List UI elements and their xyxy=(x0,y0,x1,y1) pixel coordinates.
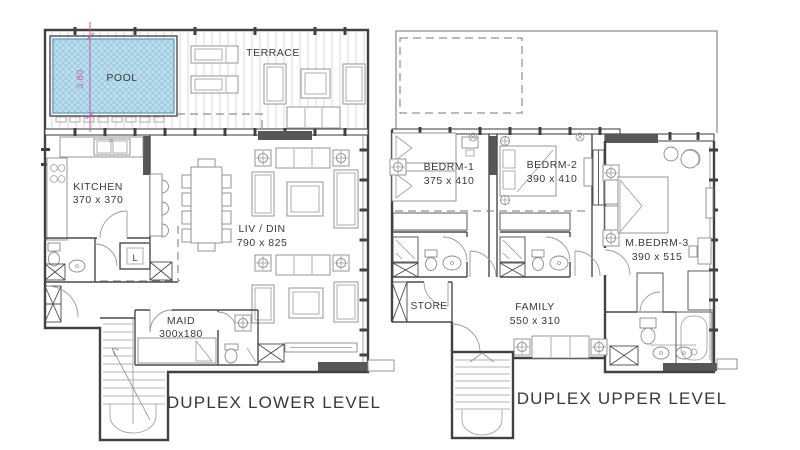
bedroom1-label: BEDRM-1 xyxy=(424,161,475,173)
pool-area: 3.80 POOL xyxy=(50,22,177,132)
upper-level-title: DUPLEX UPPER LEVEL xyxy=(517,389,728,408)
living-furniture xyxy=(252,148,358,362)
master-bedroom-dim-label: 390 x 515 xyxy=(632,251,683,263)
floorplan-page: 3.80 POOL TERRACE xyxy=(0,0,800,450)
bathroom-2 xyxy=(500,232,570,277)
bedroom1-dim-label: 375 x 410 xyxy=(424,175,475,187)
store-room: STORE xyxy=(392,282,452,322)
maid-room: MAID 300x180 xyxy=(135,310,258,365)
laundry-label: L xyxy=(132,253,137,263)
bedroom-2: BEDRM-2 390 x 410 xyxy=(500,133,592,205)
master-bedroom-label: M.BEDRM-3 xyxy=(625,237,688,249)
kitchen-label: KITCHEN xyxy=(73,181,123,193)
store-label: STORE xyxy=(411,301,448,312)
lower-footprint-outline xyxy=(396,31,717,133)
pool-label: POOL xyxy=(106,72,137,84)
kitchen: KITCHEN 370 x 370 xyxy=(45,135,169,242)
lower-level-plan: 3.80 POOL TERRACE xyxy=(41,22,394,440)
bedroom-1: BEDRM-1 375 x 410 xyxy=(390,133,478,201)
family-label: FAMILY xyxy=(515,301,555,313)
upper-level-plan: BEDRM-1 375 x 410 BEDRM-2 390 x 410 xyxy=(390,31,737,438)
floorplan-drawing: 3.80 POOL TERRACE xyxy=(0,0,800,450)
family-dim-label: 550 x 310 xyxy=(510,315,561,327)
kitchen-dim-label: 370 x 370 xyxy=(73,194,124,206)
open-below-dashed xyxy=(400,38,522,113)
lower-stairs xyxy=(100,318,165,433)
maid-dim-label: 300x180 xyxy=(159,328,203,340)
bedroom2-dim-label: 390 x 410 xyxy=(527,173,578,185)
master-bedroom: M.BEDRM-3 390 x 515 xyxy=(603,147,713,264)
pool-dimension-label: 3.80 xyxy=(75,69,85,89)
wardrobe-bedroom2 xyxy=(500,213,570,230)
maid-label: MAID xyxy=(167,315,195,327)
dining-set xyxy=(182,159,231,251)
master-bath xyxy=(605,271,737,371)
wardrobe-bedroom1 xyxy=(393,213,467,230)
lower-level-title: DUPLEX LOWER LEVEL xyxy=(167,393,381,412)
livdin-dim-label: 790 x 825 xyxy=(237,237,288,249)
family-room: FAMILY 550 x 310 xyxy=(452,301,607,358)
bedroom2-label: BEDRM-2 xyxy=(527,159,578,171)
livdin-label: LIV / DIN xyxy=(238,223,285,235)
upper-stairs xyxy=(452,352,513,438)
bathroom-1 xyxy=(393,232,467,277)
terrace-label: TERRACE xyxy=(246,47,300,59)
